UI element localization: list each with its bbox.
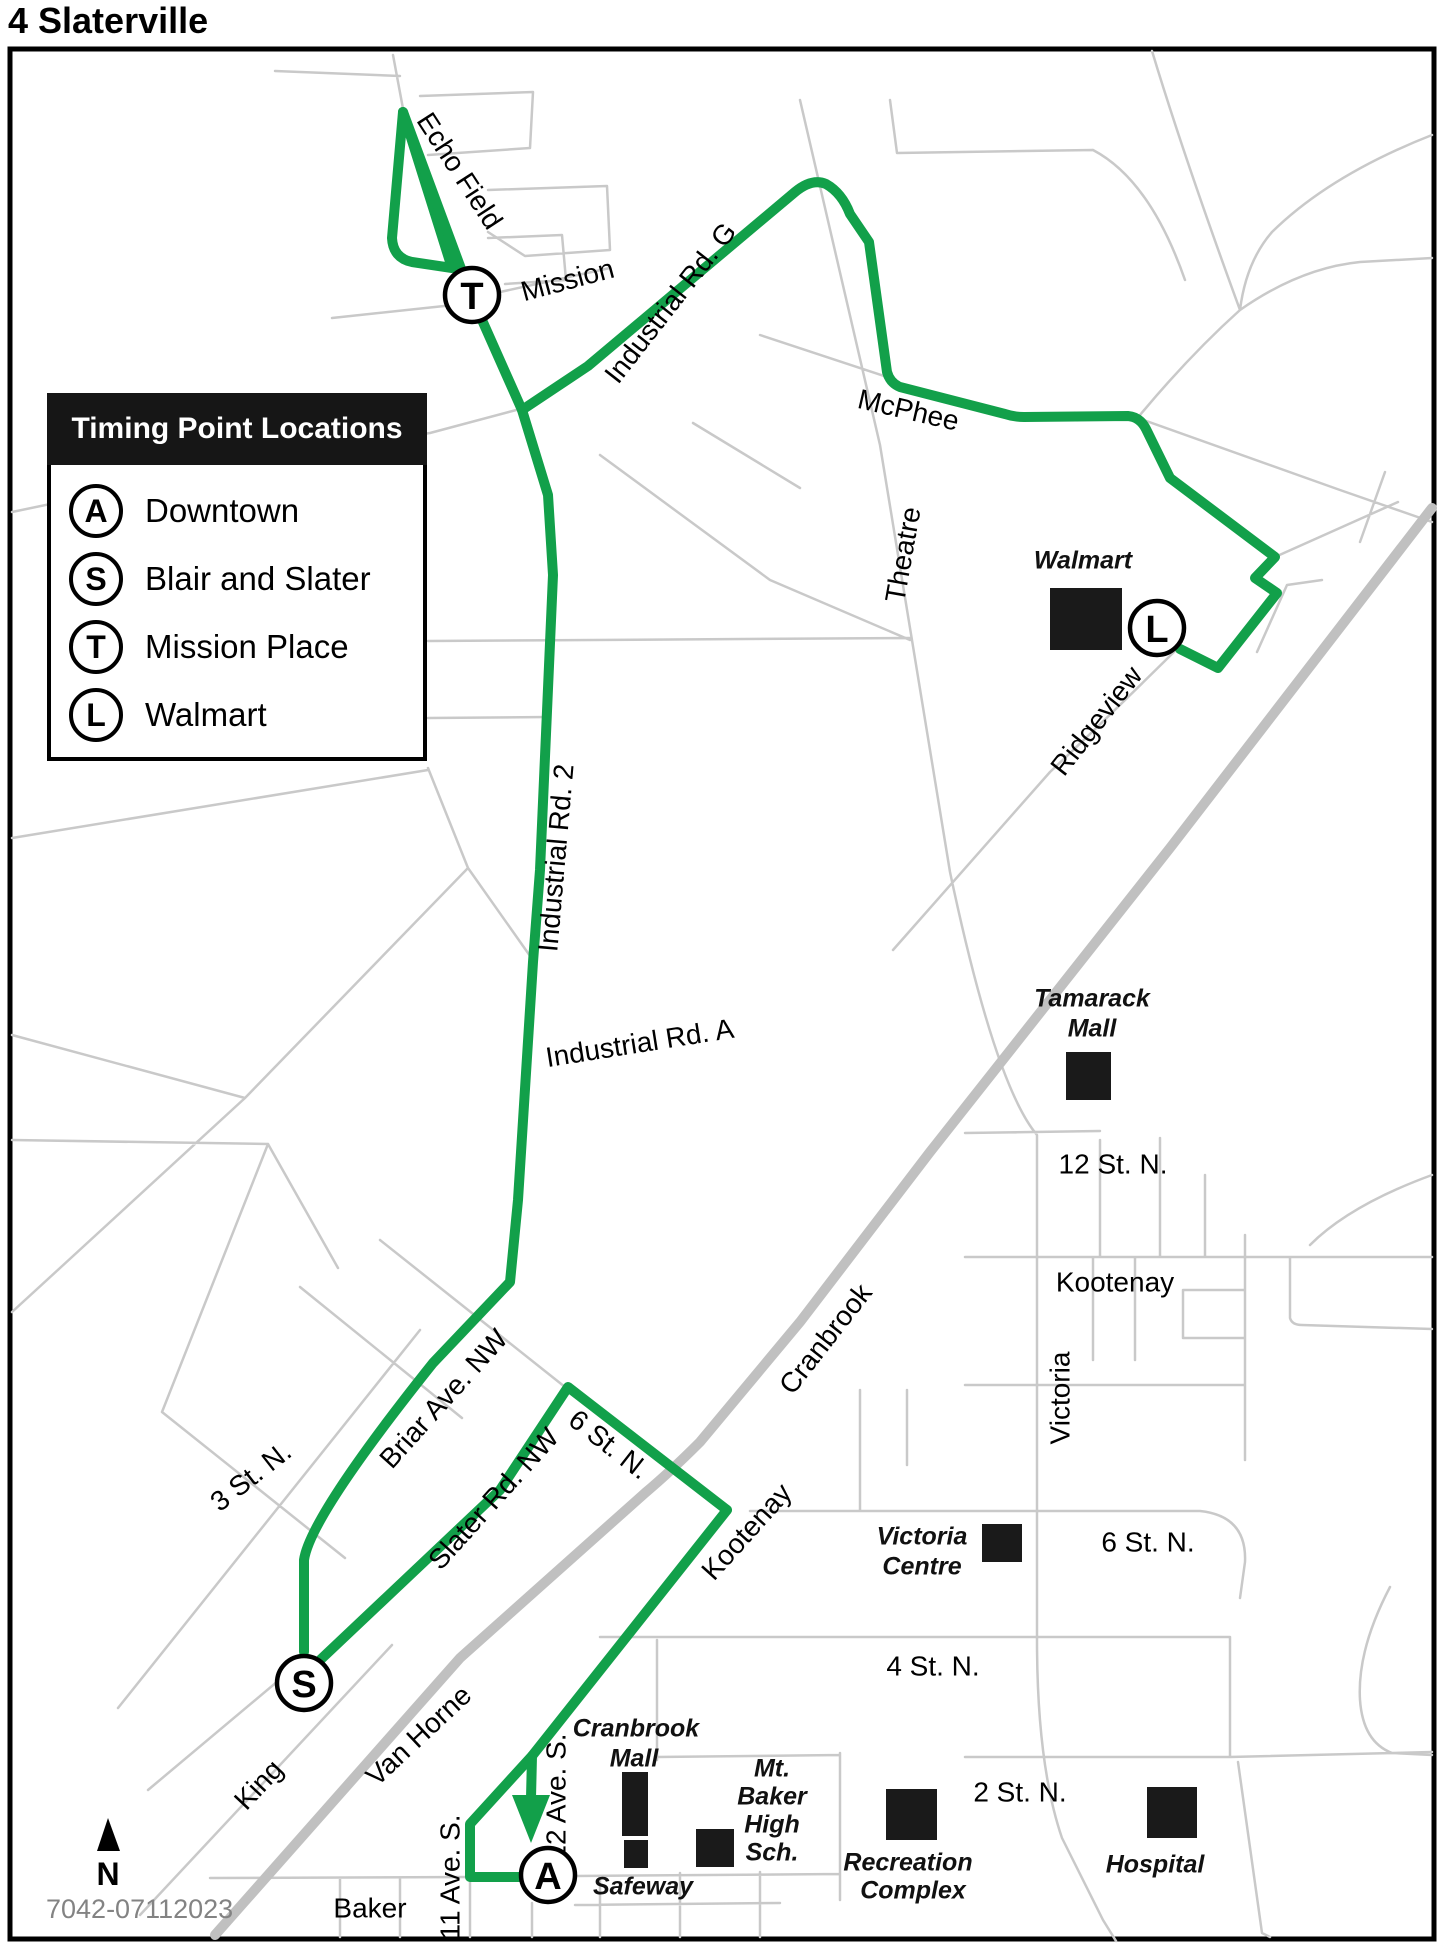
place-label: Mall	[1068, 1015, 1118, 1043]
compass-north-label: N	[96, 1856, 119, 1892]
street-label: Victoria	[1044, 1351, 1075, 1444]
timing-point-letter: S	[291, 1664, 316, 1706]
street-label: 4 St. N.	[886, 1650, 979, 1681]
place-label: Cranbrook	[573, 1715, 701, 1743]
legend-row-downtown: A Downtown	[69, 477, 423, 545]
street-label: 12 St. N.	[1059, 1148, 1168, 1179]
place-label: Tamarack	[1034, 985, 1151, 1013]
street-label: Baker	[333, 1892, 406, 1923]
street-label: 2 St. N.	[973, 1776, 1066, 1807]
timing-point-s-icon: S	[69, 552, 123, 606]
legend-row-blair-and-slater: S Blair and Slater	[69, 545, 423, 613]
place-label: Walmart	[1034, 547, 1134, 575]
place-label: Recreation	[843, 1849, 972, 1877]
place-label: Mt.	[754, 1755, 790, 1783]
legend-row-mission-place: T Mission Place	[69, 613, 423, 681]
route-12ave-leg	[531, 1756, 532, 1798]
timing-point-letter: A	[534, 1856, 561, 1898]
timing-point-marker-s: S	[277, 1656, 331, 1710]
place-label: Mall	[610, 1745, 660, 1773]
timing-point-letter: L	[1145, 609, 1168, 651]
recreation-complex-square	[886, 1789, 937, 1840]
place-label: Safeway	[593, 1873, 694, 1901]
hospital-square	[1147, 1787, 1197, 1838]
street-label: 11 Ave. S.	[434, 1814, 465, 1939]
place-label: Centre	[882, 1553, 961, 1581]
legend-body: A Downtown S Blair and Slater T Mission …	[47, 465, 427, 761]
victoria-centre-square	[982, 1524, 1022, 1562]
route-map: N Echo FieldMissionIndustrial Rd. GMcPhe…	[0, 0, 1440, 1945]
timing-point-marker-a: A	[521, 1848, 575, 1902]
walmart-square	[1050, 588, 1122, 650]
tamarack-mall-square	[1066, 1052, 1111, 1100]
timing-point-l-icon: L	[69, 688, 123, 742]
street-label: Kootenay	[1056, 1266, 1174, 1297]
transit-route-map-page: 4 Slaterville N Echo FieldMissionIndustr…	[0, 0, 1440, 1945]
street-label: 6 St. N.	[1101, 1526, 1194, 1557]
place-label: Hospital	[1106, 1851, 1206, 1879]
cranbrook-mall-building-1	[622, 1772, 648, 1836]
place-label: Victoria	[877, 1523, 968, 1551]
timing-point-letter: T	[460, 276, 483, 318]
legend-header: Timing Point Locations	[47, 393, 427, 465]
cranbrook-mall-building-2	[624, 1840, 648, 1868]
place-label: Baker	[737, 1783, 808, 1811]
timing-point-legend: Timing Point Locations A Downtown S Blai…	[47, 393, 427, 761]
legend-label: Mission Place	[145, 628, 349, 666]
place-label: Complex	[860, 1877, 967, 1905]
timing-point-marker-t: T	[445, 268, 499, 322]
legend-label: Walmart	[145, 696, 267, 734]
legend-label: Downtown	[145, 492, 299, 530]
map-revision-code: 7042-07112023	[46, 1894, 233, 1925]
place-label: High	[744, 1811, 800, 1839]
street-label: 12 Ave. S.	[540, 1733, 571, 1860]
timing-point-t-icon: T	[69, 620, 123, 674]
place-label: Sch.	[746, 1839, 799, 1867]
map-border	[10, 49, 1434, 1939]
timing-point-marker-l: L	[1130, 601, 1184, 655]
legend-row-walmart: L Walmart	[69, 681, 423, 749]
safeway-square	[696, 1829, 734, 1867]
legend-label: Blair and Slater	[145, 560, 371, 598]
timing-point-a-icon: A	[69, 484, 123, 538]
